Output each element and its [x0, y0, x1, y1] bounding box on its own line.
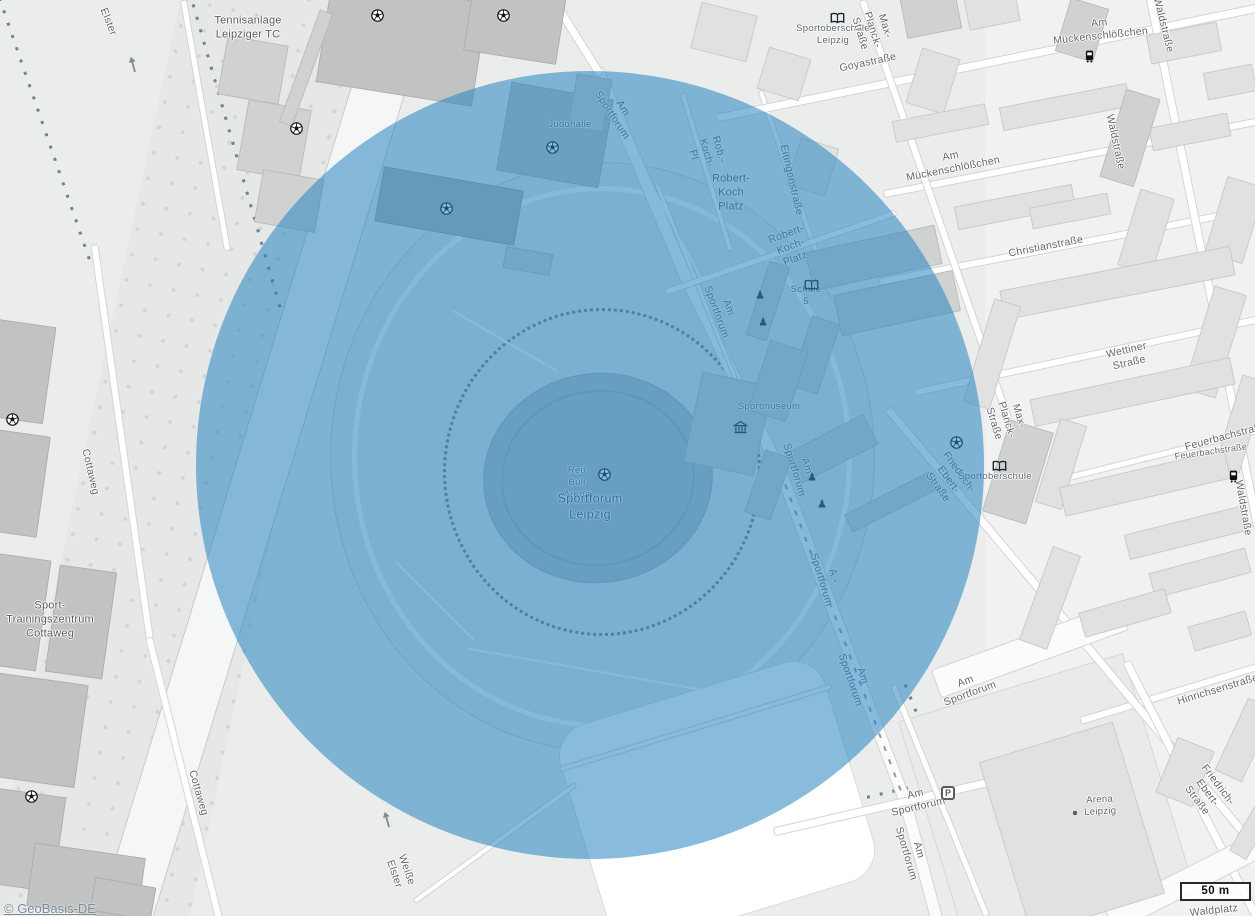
building: [236, 99, 312, 181]
building: [217, 35, 288, 105]
place-label: Sportforum Leipzig: [558, 491, 623, 522]
street-label: Am Sportforum: [835, 648, 878, 708]
building: [0, 318, 56, 425]
parking-icon: P: [941, 786, 955, 800]
place-label: Tennisanlage Leipziger TC: [214, 14, 281, 42]
place-label: Sportmuseum: [738, 401, 800, 413]
street-label: Elster: [97, 6, 120, 37]
building: [0, 428, 51, 538]
poi-dot-icon: [1073, 811, 1077, 815]
place-label: Arena Leipzig: [1083, 793, 1116, 818]
attribution-link[interactable]: © GeoBasis-DE: [4, 901, 96, 916]
statue-icon: ♟: [755, 290, 765, 301]
statue-icon: ♟: [817, 499, 827, 510]
place-label: Sportoberschule: [958, 471, 1032, 483]
building: [900, 0, 963, 39]
street-label: Rob.-Koch-Pl.: [683, 134, 729, 173]
scale-bar: 50 m: [1180, 882, 1251, 901]
place-label: Robert-Koch Platz: [712, 172, 750, 213]
tree-row: [0, 0, 92, 263]
statue-icon: ♟: [807, 472, 817, 483]
map-canvas[interactable]: Tennisanlage Leipziger TCElsterSportober…: [0, 0, 1255, 916]
street-label: Am Sportforum: [892, 822, 932, 882]
building: [0, 672, 89, 788]
building: [254, 169, 324, 233]
road: [412, 782, 577, 904]
place-label: Judohalle: [548, 119, 591, 131]
place-label: Sport-Trainingszentrum Cottaweg: [6, 599, 94, 640]
street-label: Weiße Elster: [382, 853, 417, 891]
building: [905, 47, 960, 114]
statue-icon: ♟: [758, 317, 768, 328]
building: [690, 2, 758, 63]
